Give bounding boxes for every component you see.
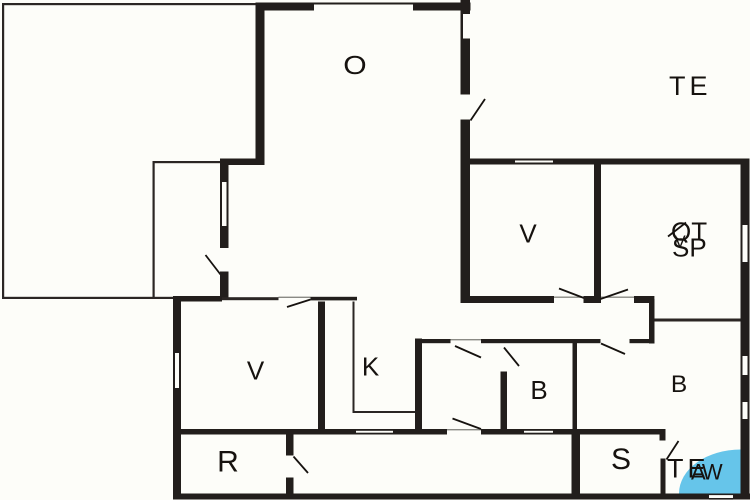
svg-text:V: V <box>247 356 265 386</box>
svg-text:AW: AW <box>691 460 723 485</box>
svg-text:B: B <box>530 375 547 405</box>
svg-text:B: B <box>671 371 687 398</box>
svg-text:O: O <box>343 51 366 79</box>
svg-text:R: R <box>217 446 239 479</box>
svg-text:K: K <box>362 352 380 382</box>
svg-text:TE: TE <box>669 71 712 101</box>
svg-text:S: S <box>611 443 631 476</box>
svg-text:V: V <box>519 219 537 249</box>
svg-text:V: V <box>674 232 686 251</box>
